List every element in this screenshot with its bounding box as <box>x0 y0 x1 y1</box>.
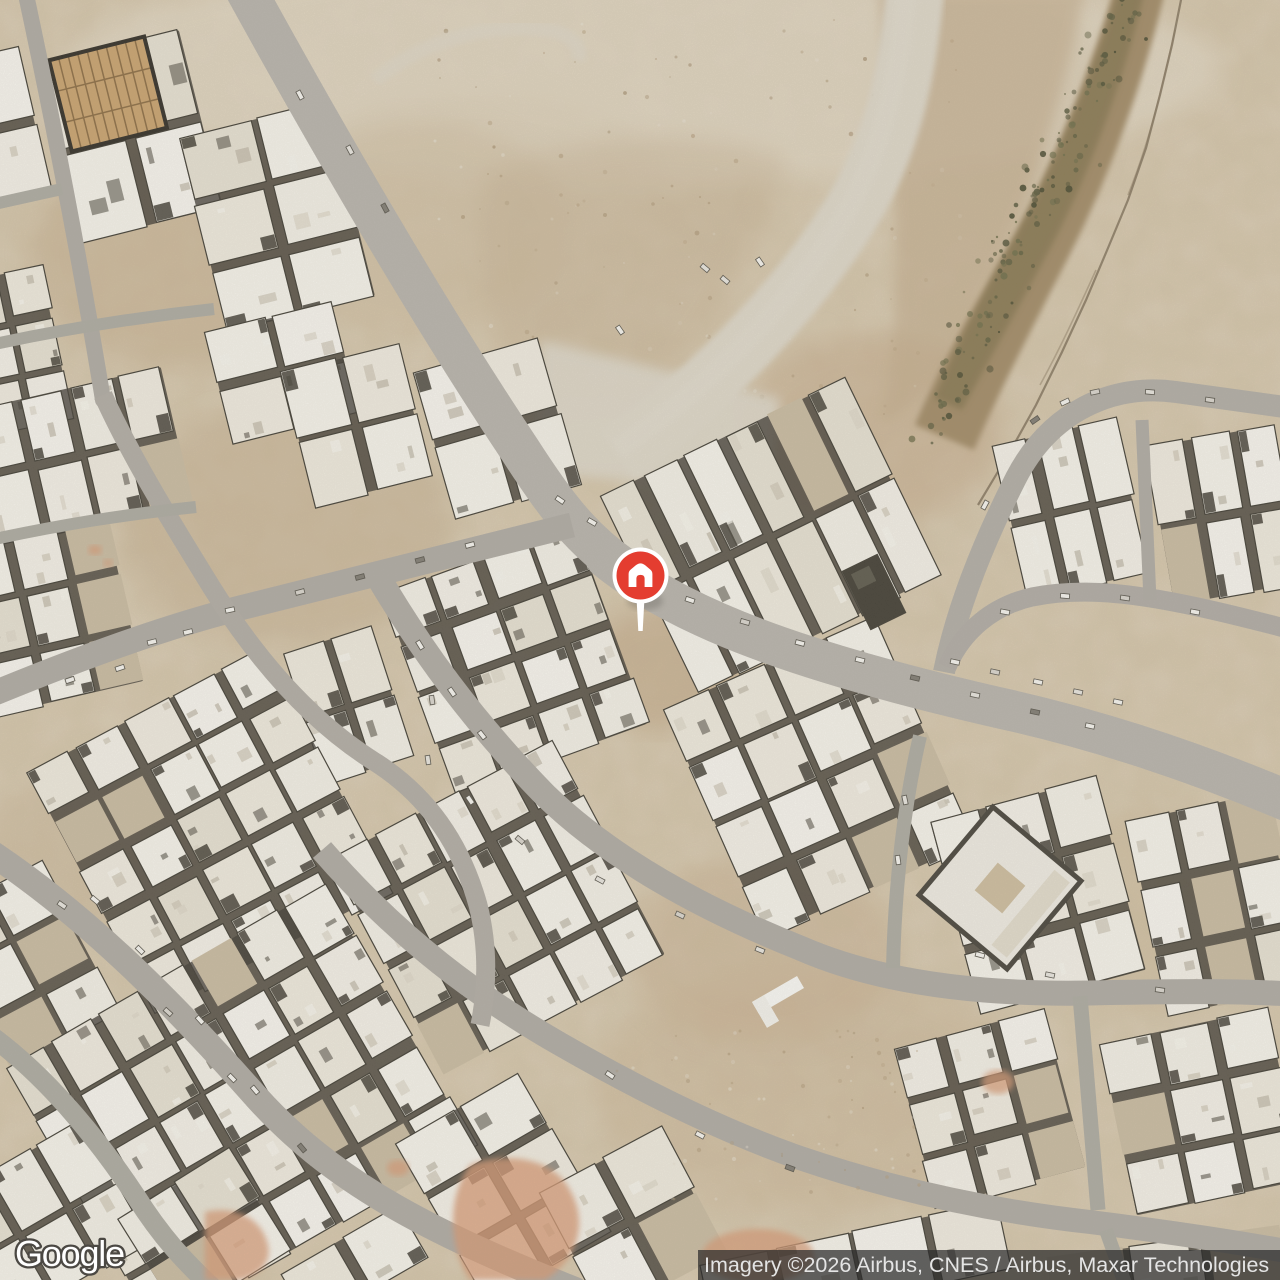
svg-text:Google: Google <box>15 1233 124 1274</box>
svg-text:Imagery ©2026 Airbus, CNES / A: Imagery ©2026 Airbus, CNES / Airbus, Max… <box>704 1253 1269 1277</box>
